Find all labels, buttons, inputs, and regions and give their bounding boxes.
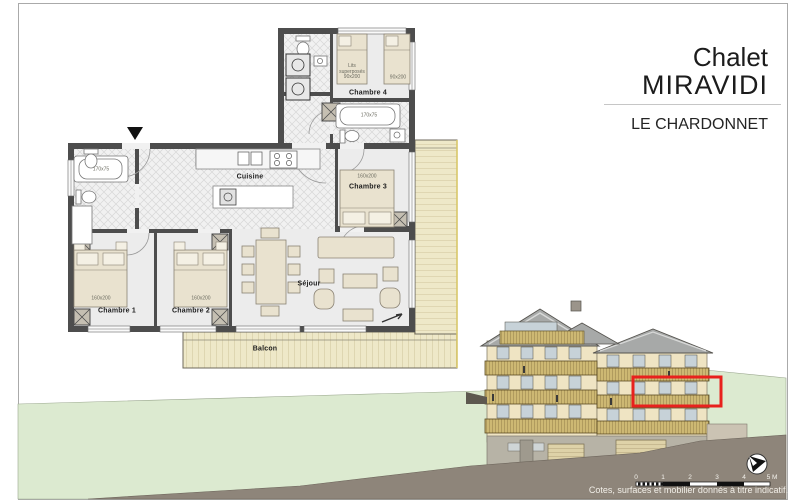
room-label-chambre2: Chambre 2 xyxy=(172,308,210,315)
room-label-chambre1: Chambre 1 xyxy=(98,308,136,315)
disclaimer-text: Cotes, surfaces et mobilier donnés à tit… xyxy=(589,485,788,495)
bunk-bed-label: Lits superposés 90x200 xyxy=(337,64,367,81)
tub-size-label: 170x75 xyxy=(93,167,109,173)
scale-tick: 5 M xyxy=(767,474,778,481)
scale-tick: 1 xyxy=(661,474,665,481)
chalet-title: Chalet xyxy=(693,42,768,73)
room-label-balcon: Balcon xyxy=(253,346,278,353)
scale-tick: 2 xyxy=(688,474,692,481)
room-label-chambre4: Chambre 4 xyxy=(349,90,387,97)
scale-tick: 4 xyxy=(742,474,746,481)
bed-size-label: 90x200 xyxy=(390,75,406,81)
balcony-bands xyxy=(485,361,709,434)
bed-size-label: 160x200 xyxy=(91,296,110,302)
entrance-arrow-icon xyxy=(127,127,143,140)
bed-size-label: 160x200 xyxy=(191,296,210,302)
scale-tick: 0 xyxy=(634,474,638,481)
room-label-chambre3: Chambre 3 xyxy=(349,184,387,191)
chalet-name: MIRAVIDI xyxy=(642,70,768,101)
title-divider xyxy=(604,104,781,105)
project-name: LE CHARDONNET xyxy=(631,116,768,134)
scale-tick: 3 xyxy=(715,474,719,481)
tub-size-label: 170x75 xyxy=(361,113,377,119)
room-label-cuisine: Cuisine xyxy=(237,174,264,181)
room-label-sejour: Séjour xyxy=(298,281,321,288)
north-arrow-icon xyxy=(747,454,767,474)
chimney xyxy=(571,301,581,311)
drawing-sheet: Chalet MIRAVIDI LE CHARDONNET Chambre 1 … xyxy=(0,0,800,500)
bed-size-label: 160x200 xyxy=(357,174,376,180)
